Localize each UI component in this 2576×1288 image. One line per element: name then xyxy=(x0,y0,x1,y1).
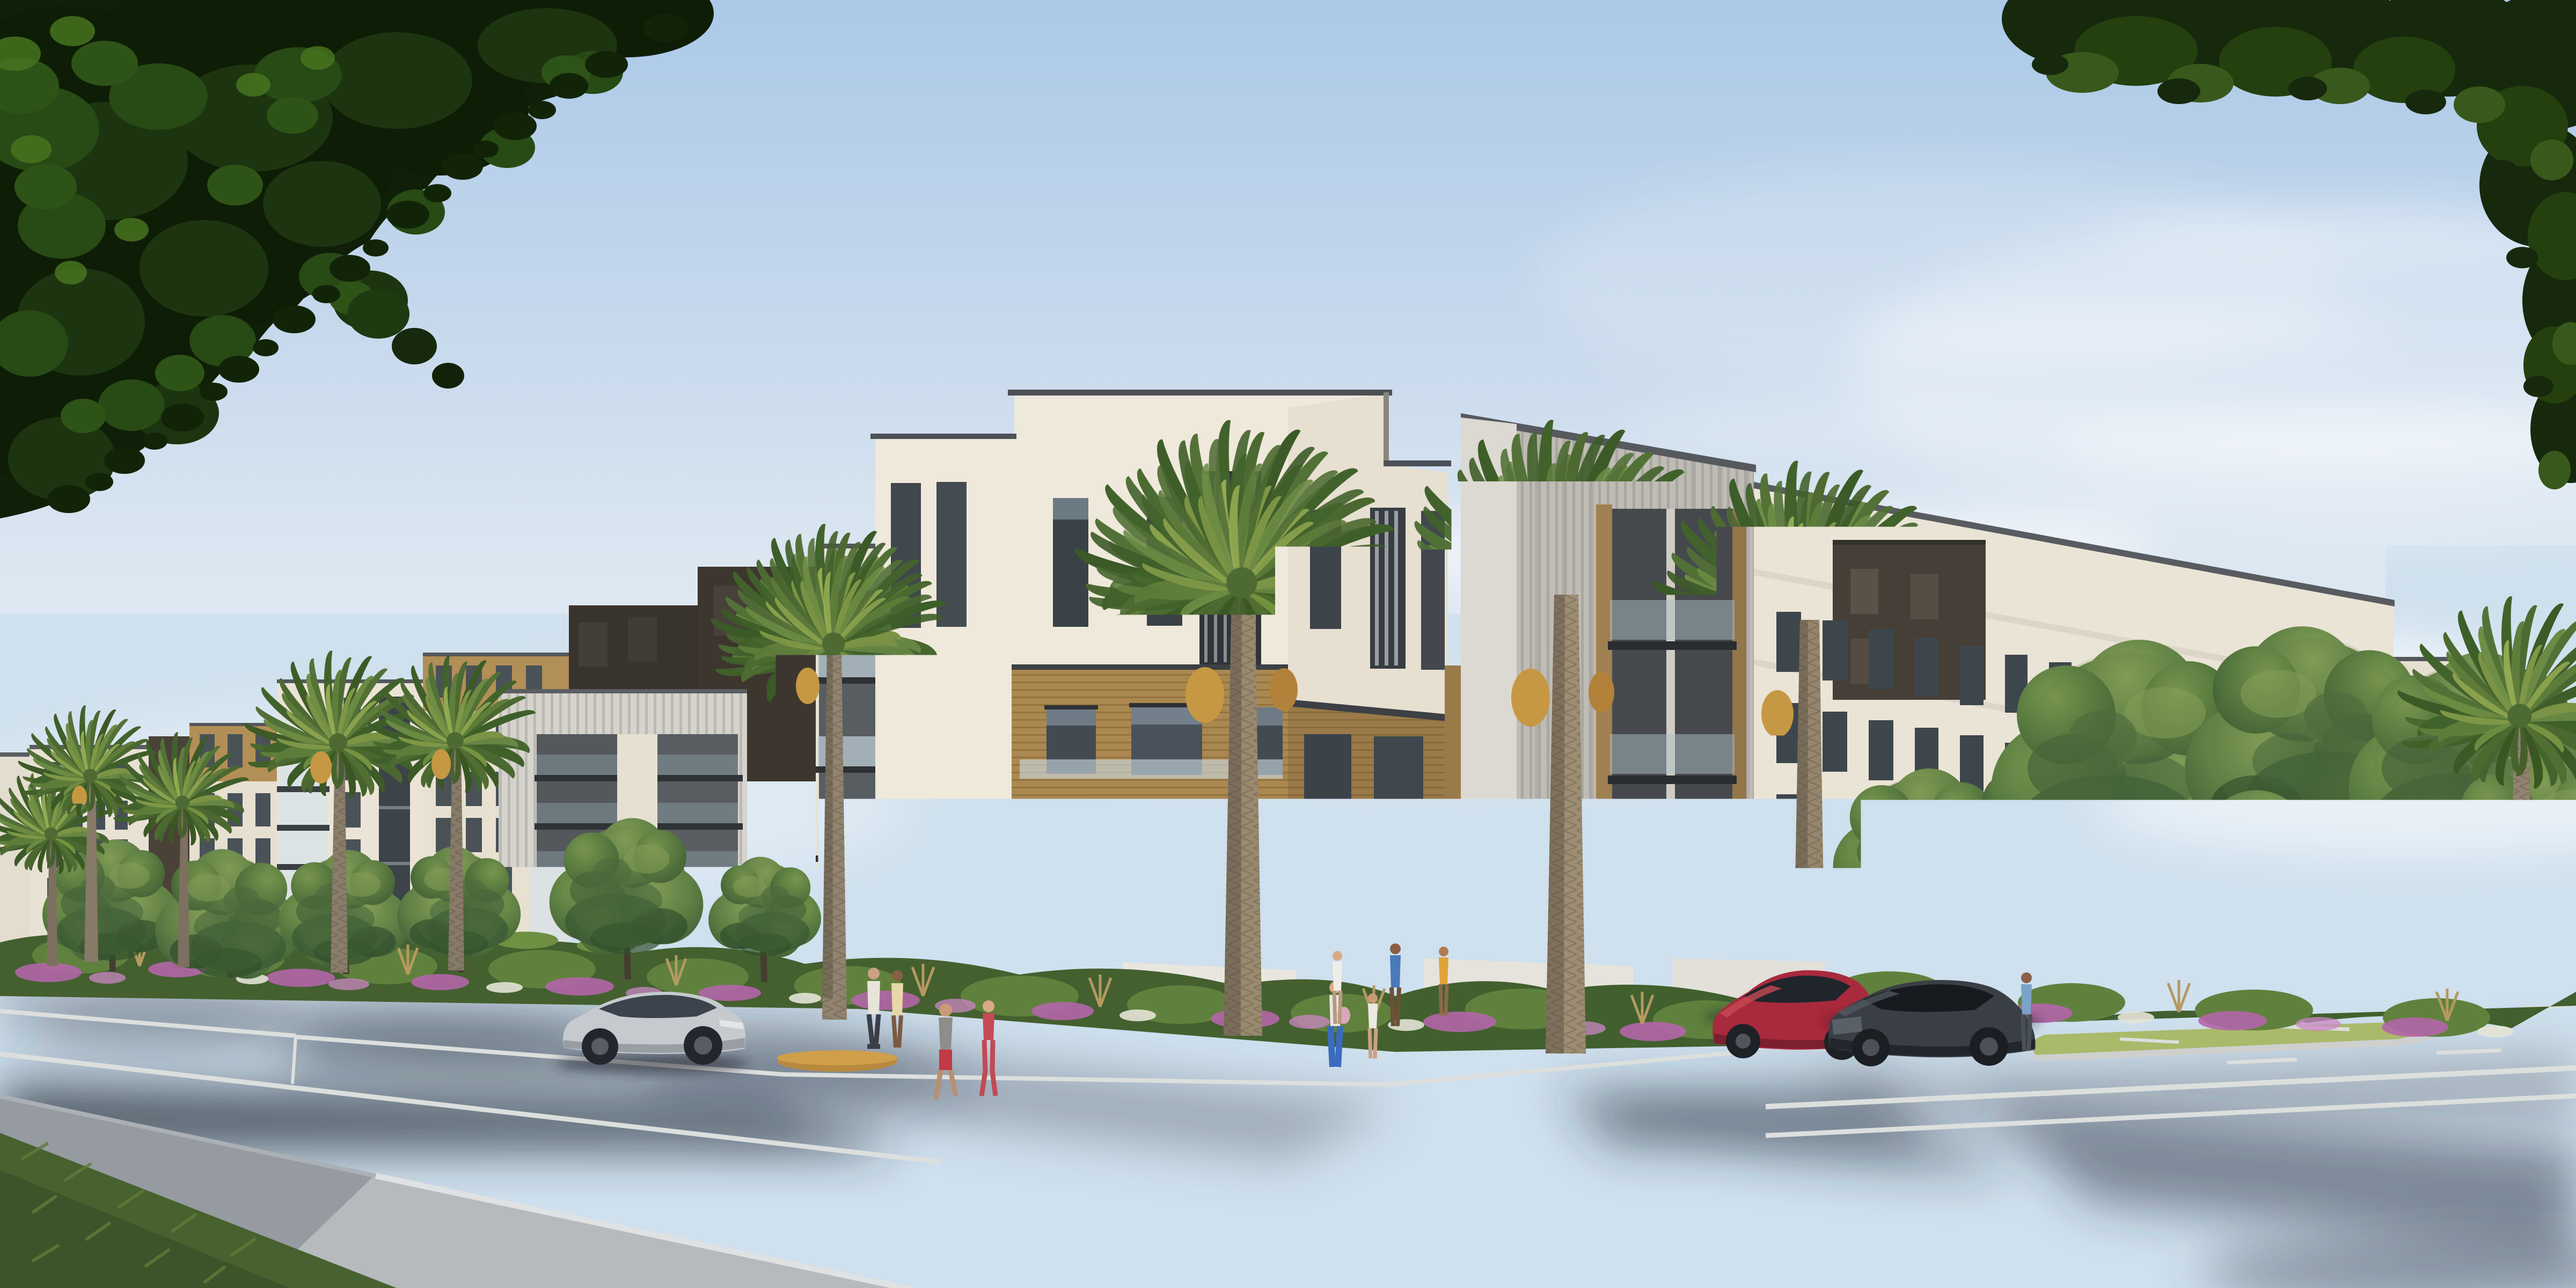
svg-text:Heil: Heil xyxy=(1114,834,1138,850)
svg-text:U TURN: U TURN xyxy=(964,783,991,791)
